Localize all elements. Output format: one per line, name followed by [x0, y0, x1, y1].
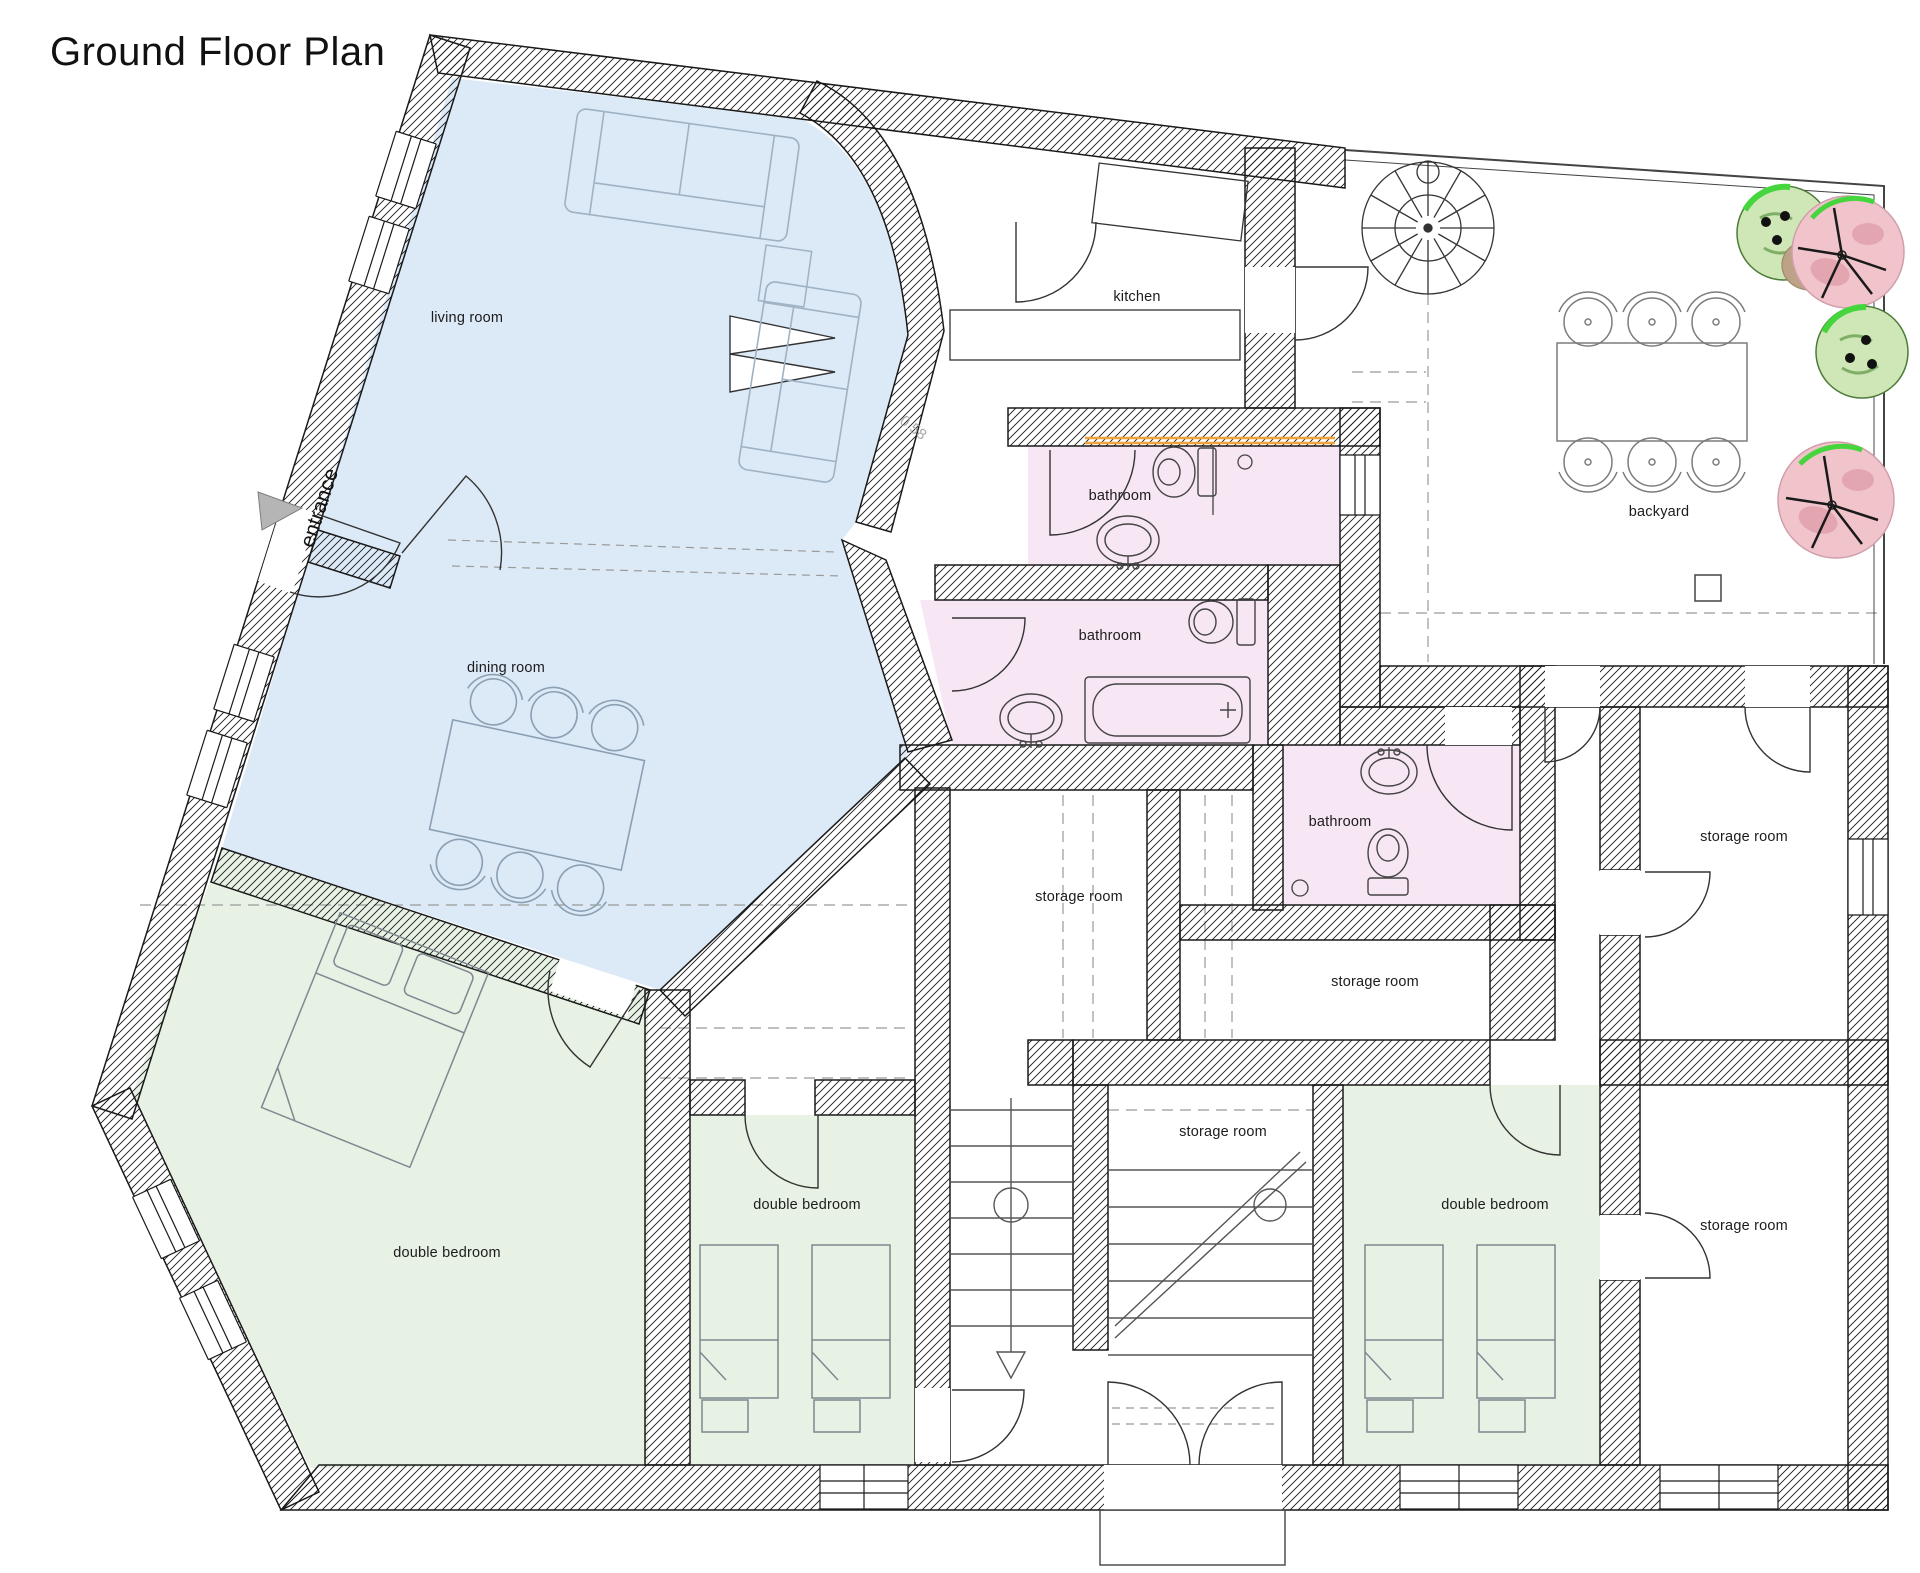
wall-bath3-west	[1253, 745, 1283, 910]
room-label-storage-stairs: storage room	[1179, 1124, 1267, 1140]
bedroom-right-area	[1343, 1085, 1600, 1465]
room-label-bathroom-upper: bathroom	[1089, 488, 1152, 504]
room-label-living-room: living room	[431, 310, 503, 326]
door-double-left	[1108, 1382, 1190, 1465]
wall-bath2-east	[1268, 565, 1340, 745]
wall-corridor-west	[1490, 905, 1555, 1040]
bedroom-center-area	[690, 1115, 915, 1465]
room-label-dining-room: dining room	[467, 660, 545, 676]
wall-bath1-bath2	[935, 565, 1268, 600]
wall-right	[1848, 666, 1888, 1510]
room-label-storage-mid-right: storage room	[1331, 974, 1419, 990]
tree-pink-icon	[1778, 442, 1894, 558]
room-label-backyard: backyard	[1629, 504, 1689, 520]
porch	[1100, 1510, 1285, 1565]
wall-right-column-1	[1600, 707, 1640, 870]
backyard-drain	[1695, 575, 1721, 601]
wall-stairwell-west	[915, 788, 950, 1465]
bathroom-upper-area	[1028, 446, 1340, 565]
window	[1848, 839, 1888, 915]
room-label-bathroom-right: bathroom	[1309, 814, 1372, 830]
room-label-bedroom-center: double bedroom	[753, 1197, 861, 1213]
wall-h6-west	[1073, 1040, 1490, 1085]
tree-green-icon	[1816, 306, 1908, 398]
wall-bath2-bottom	[900, 745, 1253, 790]
stairs-main	[950, 1098, 1073, 1378]
door-storage-upper-right	[1645, 872, 1710, 937]
wall-bedroom1-east	[645, 990, 690, 1465]
room-label-kitchen: kitchen	[1113, 289, 1160, 305]
wall-bedroom2-top-b	[815, 1080, 915, 1115]
tree-pink-icon	[1792, 196, 1904, 308]
wall-bedroom2-top-a	[690, 1080, 745, 1115]
stairs-secondary	[1108, 1152, 1313, 1355]
floor-plan-drawing	[0, 0, 1920, 1573]
stair-direction-arrow	[997, 1352, 1025, 1378]
room-label-storage-upper-right: storage room	[1700, 829, 1788, 845]
wall-bath1-top	[1008, 408, 1380, 446]
window	[1400, 1465, 1518, 1509]
kitchen-counter	[950, 163, 1248, 360]
window	[1340, 455, 1380, 515]
door-backyard-storage	[1745, 707, 1810, 772]
outdoor-chairs	[1559, 292, 1745, 492]
wall-h6-east	[1600, 1040, 1888, 1085]
room-label-bedroom-right: double bedroom	[1441, 1197, 1549, 1213]
wall-bottom	[281, 1465, 1888, 1510]
outdoor-table	[1557, 292, 1747, 492]
door-kitchen-backyard	[1295, 267, 1368, 340]
floor-plan-page: Ground Floor Plan entrance 0.58 living r…	[0, 0, 1920, 1573]
room-label-bathroom-middle: bathroom	[1079, 628, 1142, 644]
door-stair-hall	[952, 1390, 1024, 1462]
wall-right-column-2	[1600, 935, 1640, 1215]
room-label-storage-lower-right: storage room	[1700, 1218, 1788, 1234]
page-title: Ground Floor Plan	[50, 30, 385, 75]
wall-stairwell-top	[1028, 1040, 1073, 1085]
spiral-staircase	[1362, 161, 1494, 294]
wall-stairroom-east	[1313, 1085, 1343, 1465]
wall-stairwell-east	[1073, 1085, 1108, 1350]
wall-bath3-east	[1520, 666, 1555, 940]
wall-storage-divider	[1147, 790, 1180, 1040]
wall-east-step	[1340, 408, 1380, 707]
room-label-storage-center: storage room	[1035, 889, 1123, 905]
wall-backyard-south	[1380, 666, 1888, 707]
trees	[1737, 186, 1908, 558]
room-label-bedroom-left: double bedroom	[393, 1245, 501, 1261]
window	[820, 1465, 908, 1509]
door-kitchen	[1016, 222, 1096, 302]
wall-right-column-3	[1600, 1280, 1640, 1465]
window	[1660, 1465, 1778, 1509]
